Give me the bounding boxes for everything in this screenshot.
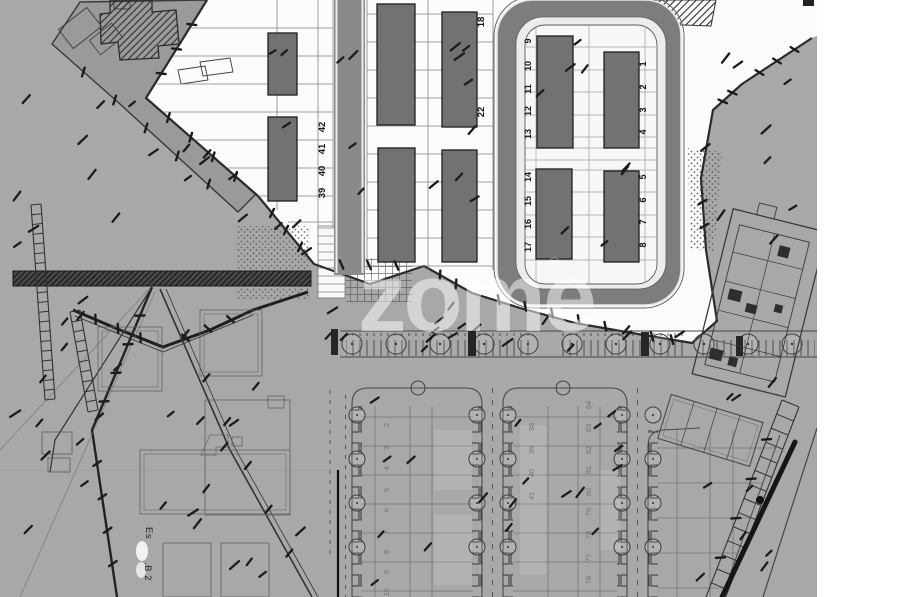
tree-dot <box>356 414 358 416</box>
tree-dot <box>476 502 478 504</box>
plot-number: 83 <box>584 424 593 432</box>
plot-number: 16 <box>523 219 533 229</box>
plot-number: 81 <box>584 466 593 474</box>
tree-dot <box>476 546 478 548</box>
plot-number: 18 <box>476 17 487 28</box>
plot-number: 1 <box>638 61 648 66</box>
plot-number: 39 <box>527 446 536 454</box>
plot-number: 79 <box>584 508 593 516</box>
tree-dot <box>621 458 623 460</box>
watermark-symbol: ® <box>549 255 560 272</box>
tree-dot <box>356 546 358 548</box>
stipple-patch <box>236 226 310 300</box>
scan-wash <box>600 470 620 550</box>
plot-number: 4 <box>638 129 648 134</box>
plot-number: 8 <box>382 550 391 554</box>
plot-number: 41 <box>527 492 536 500</box>
plot-number: 2 <box>638 84 648 89</box>
plot-number: 76 <box>584 576 593 584</box>
plot-number: 38 <box>527 423 536 431</box>
tree-dot <box>652 414 654 416</box>
tick-mark <box>604 322 606 331</box>
plot-number: 13 <box>523 129 533 139</box>
label-b2: .B 2 <box>142 562 153 581</box>
tree-dot <box>476 458 478 460</box>
tick-mark <box>747 479 756 480</box>
plot-number: 41 <box>317 143 328 154</box>
tick-mark <box>187 24 196 25</box>
tree-dot <box>356 502 358 504</box>
plot-number: 8 <box>638 242 648 247</box>
tick-mark <box>762 439 771 440</box>
plan-area: Es .B 2 42414039182291011121314151617123… <box>0 0 829 597</box>
plot-number: 40 <box>527 469 536 477</box>
site-plan-map: Es .B 2 42414039182291011121314151617123… <box>0 0 900 597</box>
plot-number: 3 <box>638 107 648 112</box>
plot-number: 77 <box>584 554 593 562</box>
plot-number: 82 <box>584 446 593 454</box>
tree-dot <box>703 343 705 345</box>
plot-number: 3 <box>382 446 391 450</box>
plot-number: 80 <box>584 488 593 496</box>
tick-mark <box>731 518 740 519</box>
road-vertical-1 <box>334 0 365 275</box>
plot-number: 14 <box>523 172 533 182</box>
tree-dot <box>356 458 358 460</box>
plot-number: 6 <box>638 197 648 202</box>
tick-mark <box>716 557 725 558</box>
tree-dot <box>615 343 617 345</box>
tree-dot <box>476 414 478 416</box>
plot-number: 40 <box>317 166 328 177</box>
tree-dot <box>507 502 509 504</box>
tree-dot <box>652 502 654 504</box>
plot-number: 2 <box>382 423 391 427</box>
tree-dot <box>507 414 509 416</box>
plot-number: 84 <box>584 401 593 409</box>
tree-dot <box>652 458 654 460</box>
plot-number: 4 <box>382 466 391 470</box>
plot-number: 6 <box>382 508 391 512</box>
plot-number: 5 <box>382 488 391 492</box>
plot-number: 11 <box>523 84 533 94</box>
edge-mark <box>803 0 814 6</box>
scan-wash <box>434 430 472 490</box>
tree-dot <box>621 546 623 548</box>
plot-number: 42 <box>317 122 328 133</box>
plot-number: 78 <box>584 531 593 539</box>
scan-wash <box>434 515 472 585</box>
tree-dot <box>791 343 793 345</box>
plot-number: 9 <box>523 38 533 43</box>
tree-dot <box>659 343 661 345</box>
plot-number: 12 <box>523 106 533 116</box>
tree-dot <box>507 546 509 548</box>
plot-number: 15 <box>523 196 533 206</box>
tick-mark <box>172 48 181 49</box>
watermark: zome ® <box>358 243 594 352</box>
tree-dot <box>351 343 353 345</box>
plot-number: 10 <box>523 61 533 71</box>
plot-number: 22 <box>476 107 487 118</box>
plot-number: 7 <box>638 219 648 224</box>
retaining-wall <box>13 271 311 286</box>
tree-dot <box>652 546 654 548</box>
plot-number: 10 <box>382 588 391 596</box>
label-escala: Es <box>143 527 154 539</box>
tree-dot <box>621 414 623 416</box>
tree-dot <box>507 458 509 460</box>
scanned-site-plan: Es .B 2 42414039182291011121314151617123… <box>0 0 900 597</box>
tick-mark <box>157 73 166 74</box>
tree-dot <box>621 502 623 504</box>
plot-number: 5 <box>638 174 648 179</box>
plot-number: 9 <box>382 570 391 574</box>
plot-number: 39 <box>317 188 328 199</box>
parking-post <box>641 332 649 356</box>
